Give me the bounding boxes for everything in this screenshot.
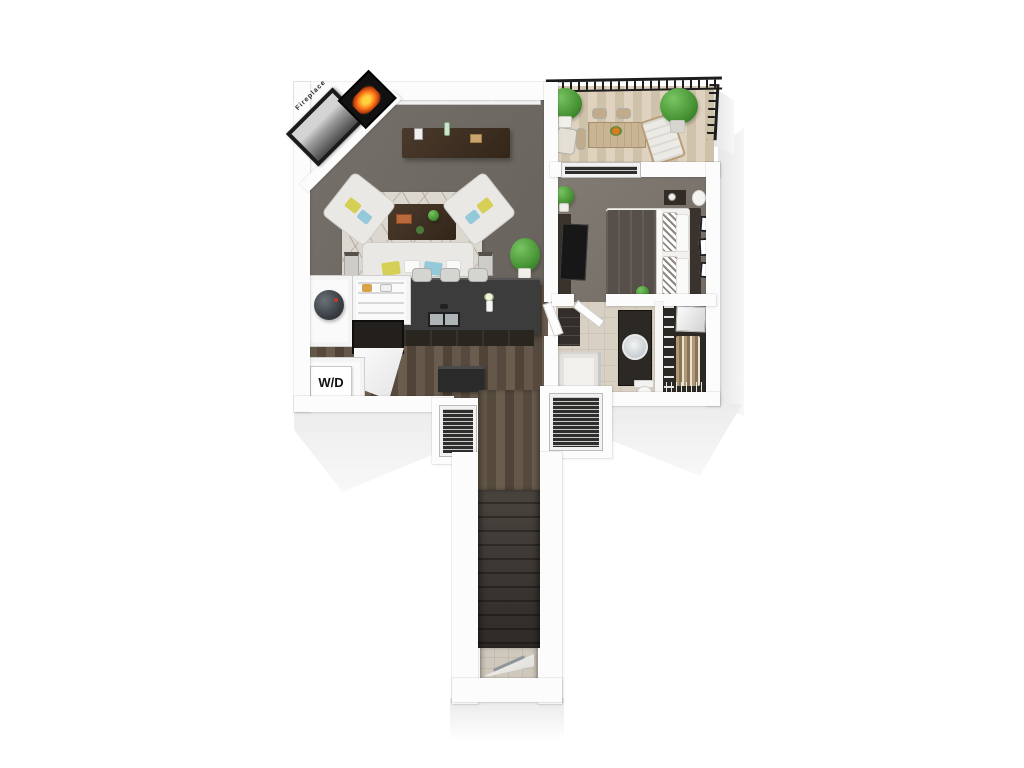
vanity-sink-mirror [622,334,648,360]
wd-label: W/D [310,366,352,398]
entry-console-table [438,366,484,392]
stairwell-wall-bottom [452,678,562,702]
wd-label-text: W/D [318,375,343,390]
wall-face-stairwell-bottom [450,698,564,740]
kitchen-faucet [440,304,448,309]
fireplace-fire [349,82,384,117]
stair-landing-top [478,390,540,490]
wall-face-bottom-right [610,404,742,476]
wall-bedroom-bath-left [552,294,574,306]
wall-mid-vertical-upper [544,82,558,302]
floorplan-3d-render: W/D Fireplace [0,0,1024,768]
pantry-items [362,284,372,292]
staircase-steps [478,490,540,648]
sofa-pillow-yellow [381,261,401,276]
water-heater-valve [334,298,338,302]
outdoor-chair [592,108,607,119]
wall-bottom-left-block [294,396,454,412]
coffee-table-decor [416,226,424,234]
console-decor-bottle [444,122,450,136]
kitchen-island [398,278,540,334]
wall-right [706,162,720,406]
bedroom-tv [560,223,589,280]
stairwell-wall-right [538,452,562,704]
wall-face-right [718,128,744,416]
outdoor-bench [576,128,586,150]
vestibule-right-window [550,394,602,450]
outdoor-table-flowers [610,126,622,136]
balcony-plant-right [660,88,698,124]
closet-hanging-clothes [676,336,700,386]
bed-duvet [606,210,658,298]
island-vase-flowers [486,300,493,312]
console-decor-lamp [414,128,423,140]
bar-stool [412,268,432,282]
coffee-table-plant [428,210,439,221]
kitchen-sink-divider [443,313,445,326]
bed-pillow-white [676,258,689,296]
kitchen-island-base [404,330,534,346]
bar-stool [468,268,488,282]
bed-pillow-white [676,214,689,252]
nightstand-lamp [668,193,676,201]
outdoor-chair [616,108,631,119]
living-plant [510,238,540,272]
closet-mirror-panel [676,305,707,332]
balcony-plant-right-pot [670,120,685,133]
vestibule-left-window [440,406,476,456]
stairwell-wall-left [452,452,478,704]
island-flower-bloom [484,293,494,301]
coffee-table-books [396,214,412,224]
laundry-hamper [692,190,706,206]
balcony-plant-left-pot [558,116,572,128]
pantry-items [380,284,392,292]
closet-wire-shelf-left [664,306,674,394]
console-decor-box [470,134,482,143]
water-heater [314,290,344,320]
side-table-left [344,252,359,276]
bedroom-window [562,163,640,177]
bar-stool [440,268,460,282]
bedroom-plant-pot [559,203,569,212]
wall-bath-closet-divider [655,302,663,398]
